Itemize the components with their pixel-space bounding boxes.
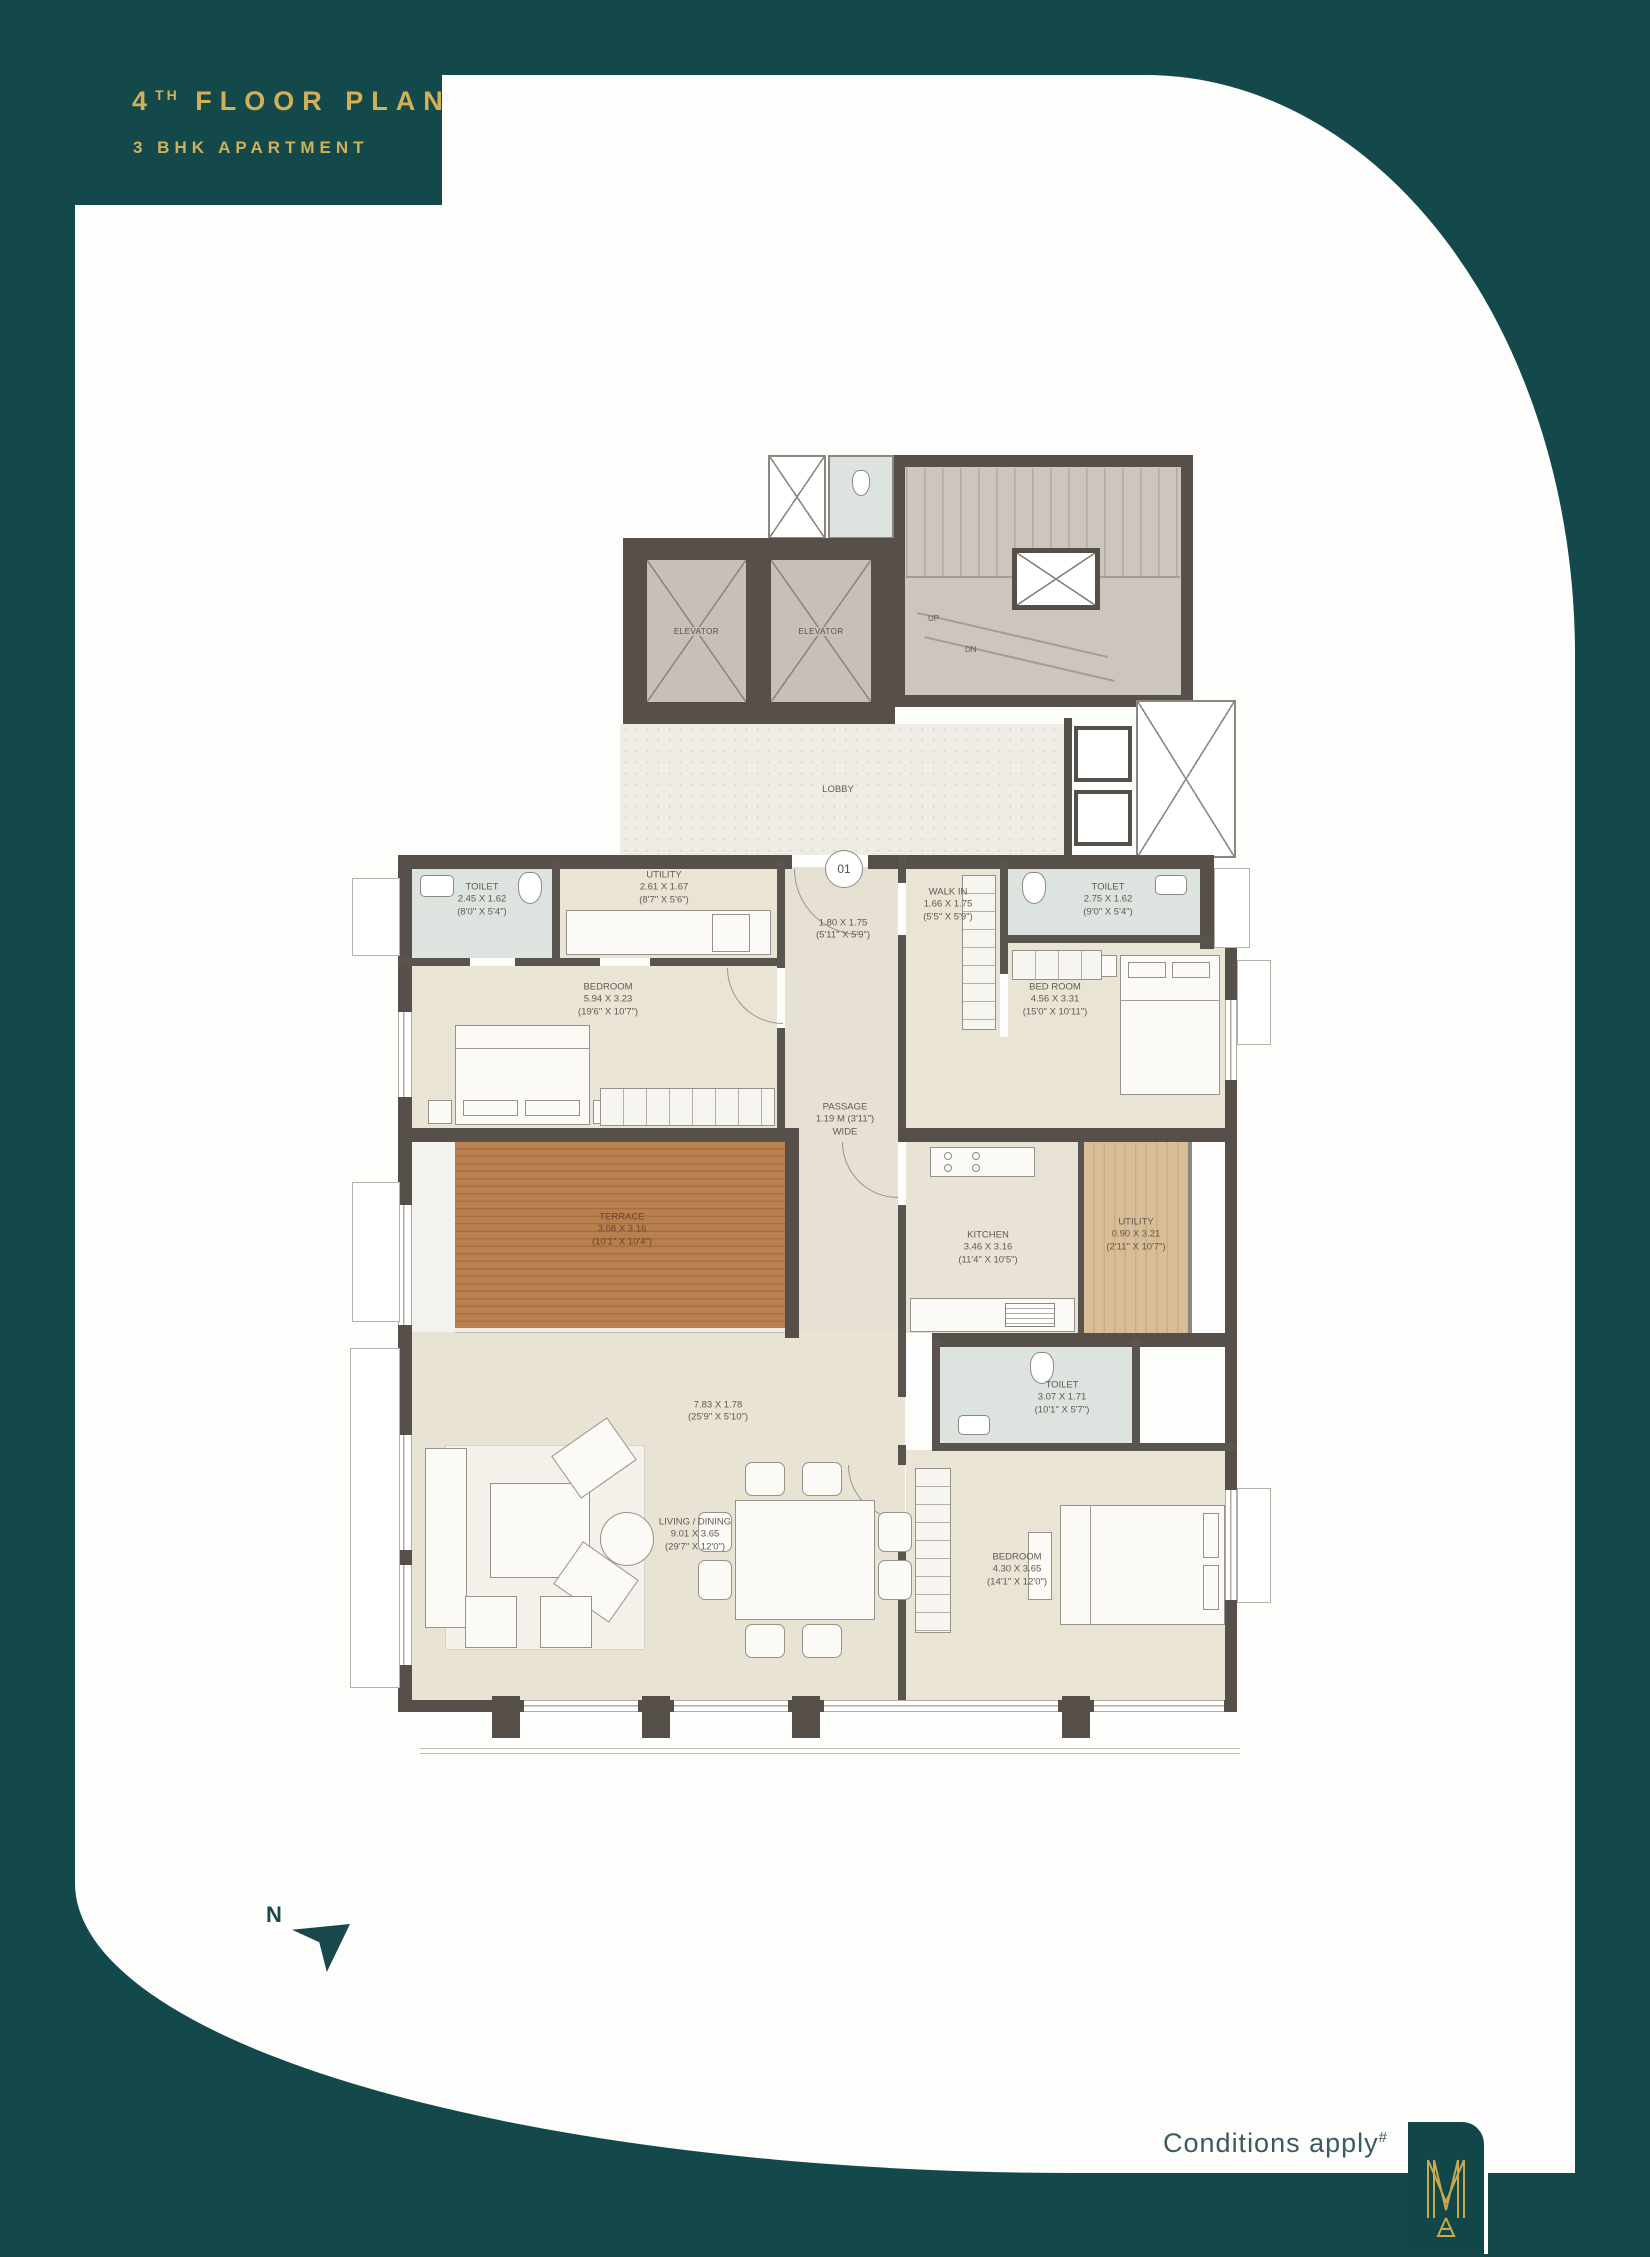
wall-segment xyxy=(898,1335,906,1397)
bedroom-2-wardrobe xyxy=(1012,950,1102,980)
wall-segment xyxy=(898,1128,1237,1142)
unit-number-badge: 01 xyxy=(825,850,863,888)
dining-chair xyxy=(745,1624,785,1658)
lobby-label: LOBBY xyxy=(822,784,854,796)
room-name: BEDROOM xyxy=(578,981,638,993)
elevator-2-label: ELEVATOR xyxy=(796,627,845,636)
room-dims-metric: 2.61 X 1.67 xyxy=(639,882,688,894)
window xyxy=(1225,1490,1237,1600)
wall-segment xyxy=(398,958,470,966)
unit-number-text: 01 xyxy=(837,862,850,876)
room-dims-imperial: (8'7" X 5'6") xyxy=(639,894,688,906)
room-dims-imperial: (29'7" X 12'0") xyxy=(659,1541,731,1553)
conditions-note: Conditions apply# xyxy=(1163,2128,1388,2159)
pier xyxy=(642,1696,670,1738)
room-dims-metric: 1.66 X 1.75 xyxy=(923,899,972,911)
window xyxy=(824,1700,1058,1712)
wall-segment xyxy=(552,860,560,958)
bed-2-pillow xyxy=(1172,962,1210,978)
exterior-ledge xyxy=(352,878,400,956)
wall-segment xyxy=(898,1445,906,1465)
wall-segment xyxy=(898,1205,906,1335)
bedroom-3-wardrobe xyxy=(915,1468,951,1633)
stair-dn-label: DN xyxy=(965,645,977,654)
wall-segment xyxy=(1064,718,1072,855)
room-dims-imperial: (15'0" X 10'11") xyxy=(1023,1006,1088,1018)
stair-up-label: UP xyxy=(928,614,939,623)
window xyxy=(1225,1000,1237,1080)
room-label-bedroom-2: BED ROOM 4.56 X 3.31 (15'0" X 10'11") xyxy=(1023,981,1088,1018)
stair-core-box xyxy=(1012,548,1100,610)
room-dims-metric: 1.80 X 1.75 xyxy=(816,918,870,930)
terrace-walkway xyxy=(412,1142,455,1332)
brand-logo xyxy=(1408,2118,1488,2254)
room-label-living-dining: LIVING / DINING 9.01 X 3.65 (29'7" X 12'… xyxy=(659,1516,731,1553)
room-name: UTILITY xyxy=(1106,1216,1165,1228)
pier xyxy=(492,1696,520,1738)
room-name: PASSAGE xyxy=(816,1101,874,1113)
room-dims-imperial: (14'1" X 12'0") xyxy=(987,1576,1047,1588)
room-label-foyer: 1.80 X 1.75 (5'11" X 5'9") xyxy=(816,918,870,943)
room-label-toilet-2: TOILET 2.75 X 1.62 (9'0" X 5'4") xyxy=(1083,881,1132,918)
service-shaft xyxy=(1074,790,1132,846)
terrace-step-edge xyxy=(455,1328,785,1333)
bed-3-pillow xyxy=(1203,1513,1219,1558)
window xyxy=(674,1700,788,1712)
service-shaft-large xyxy=(1136,700,1236,858)
wall-segment xyxy=(932,1340,940,1450)
window xyxy=(1094,1700,1224,1712)
room-dims-imperial: (10'1" X 10'4") xyxy=(592,1236,652,1248)
elevator-1-label: ELEVATOR xyxy=(672,627,721,636)
room-dims-imperial: (10'1" X 5'7") xyxy=(1035,1404,1090,1416)
room-dims-imperial: (5'5" X 5'9") xyxy=(923,911,972,923)
toilet-1-basin xyxy=(420,875,454,897)
conditions-text: Conditions apply xyxy=(1163,2128,1379,2158)
room-label-toilet-1: TOILET 2.45 X 1.62 (8'0" X 5'4") xyxy=(457,881,506,918)
room-dims-metric: 2.75 X 1.62 xyxy=(1083,894,1132,906)
hob-burner xyxy=(972,1152,980,1160)
hob-burner xyxy=(972,1164,980,1172)
title-floor-rest: FLOOR PLAN xyxy=(180,86,451,116)
page-title: 4TH FLOOR PLAN xyxy=(132,86,451,117)
dining-chair xyxy=(698,1560,732,1600)
room-dims-imperial: (5'11" X 5'9") xyxy=(816,930,870,942)
room-dims-note: WIDE xyxy=(816,1126,874,1138)
wall-north-left xyxy=(398,855,792,869)
wall-north-right xyxy=(868,855,1214,869)
elevator-2: ELEVATOR xyxy=(761,550,881,712)
title-floor-ordinal: TH xyxy=(155,87,180,103)
bed-3-pillow xyxy=(1203,1565,1219,1610)
exterior-ledge xyxy=(1237,1488,1271,1603)
wall-segment xyxy=(1000,942,1008,974)
dining-table xyxy=(735,1500,875,1620)
north-label: N xyxy=(266,1902,282,1928)
logo-m-monogram-icon xyxy=(1408,2122,1484,2252)
pier xyxy=(792,1696,820,1738)
room-dims-imperial: (19'6" X 10'7") xyxy=(578,1006,638,1018)
room-label-utility-1: UTILITY 2.61 X 1.67 (8'7" X 5'6") xyxy=(639,869,688,906)
wall-segment xyxy=(1132,1340,1140,1451)
bedroom-2-vestibule-floor xyxy=(906,1037,1008,1128)
sofa xyxy=(425,1448,467,1628)
window xyxy=(398,1205,412,1325)
title-floor-number: 4 xyxy=(132,86,155,116)
bed-3 xyxy=(1060,1505,1225,1625)
dining-chair xyxy=(802,1462,842,1496)
washing-machine xyxy=(712,914,750,952)
wall-segment xyxy=(777,1028,785,1142)
window xyxy=(524,1700,638,1712)
room-name: TOILET xyxy=(457,881,506,893)
room-dims-metric: 7.83 X 1.78 xyxy=(688,1400,748,1412)
wall-terrace-east xyxy=(785,1128,799,1338)
room-name: BED ROOM xyxy=(1023,981,1088,993)
room-label-bedroom-3: BEDROOM 4.30 X 3.65 (14'1" X 12'0") xyxy=(987,1551,1047,1588)
exterior-ledge xyxy=(352,1182,400,1322)
wall-segment xyxy=(898,935,906,1140)
bed-1-pillow xyxy=(463,1100,518,1116)
floor-plan-page: { "header": { "floor_num": "4", "floor_s… xyxy=(0,0,1650,2250)
exterior-ledge xyxy=(1214,868,1250,948)
hob-burner xyxy=(944,1164,952,1172)
room-dims-metric: 4.30 X 3.65 xyxy=(987,1564,1047,1576)
bed-3-blanket-line xyxy=(1090,1505,1091,1625)
room-name: UTILITY xyxy=(639,869,688,881)
room-label-walkin: WALK IN 1.66 X 1.75 (5'5" X 5'9") xyxy=(923,886,972,923)
wall-segment xyxy=(1000,860,1008,942)
wall-segment xyxy=(1188,1142,1192,1333)
bedside-table xyxy=(428,1100,452,1124)
kitchen-sink xyxy=(1005,1303,1055,1327)
room-dims-metric: 3.07 X 1.71 xyxy=(1035,1392,1090,1404)
room-dims-imperial: (11'4" X 10'5") xyxy=(958,1254,1017,1266)
room-label-toilet-3: TOILET 3.07 X 1.71 (10'1" X 5'7") xyxy=(1035,1379,1090,1416)
room-dims-metric: 5.94 X 3.23 xyxy=(578,994,638,1006)
room-dims-metric: 3.46 X 3.16 xyxy=(958,1242,1017,1254)
balcony-sill-line xyxy=(420,1748,1240,1754)
service-shaft xyxy=(1074,726,1132,782)
room-name: TOILET xyxy=(1035,1379,1090,1391)
room-dims-metric: 0.90 X 3.21 xyxy=(1106,1229,1165,1241)
dining-chair xyxy=(878,1512,912,1552)
common-toilet xyxy=(828,455,894,539)
wall-segment xyxy=(932,1443,1140,1451)
duct-shaft xyxy=(768,455,826,539)
bed-1-pillow xyxy=(525,1100,580,1116)
room-label-bedroom-1: BEDROOM 5.94 X 3.23 (19'6" X 10'7") xyxy=(578,981,638,1018)
wall-segment xyxy=(932,1333,1237,1347)
room-dims-imperial: (9'0" X 5'4") xyxy=(1083,906,1132,918)
room-name: BEDROOM xyxy=(987,1551,1047,1563)
room-dims-imperial: (25'9" X 5'10") xyxy=(688,1412,748,1424)
pouf xyxy=(465,1596,517,1648)
window xyxy=(398,1565,412,1665)
room-name: TOILET xyxy=(1083,881,1132,893)
room-dims-imperial: (2'11" X 10'7") xyxy=(1106,1241,1165,1253)
toilet-1-wc xyxy=(518,872,542,904)
page-subtitle: 3 BHK APARTMENT xyxy=(133,138,369,158)
dining-chair xyxy=(802,1624,842,1658)
label-deck-dims: 7.83 X 1.78 (25'9" X 5'10") xyxy=(688,1400,748,1425)
window xyxy=(398,1435,412,1550)
lobby-text: LOBBY xyxy=(822,784,854,796)
elevator-1: ELEVATOR xyxy=(637,550,756,712)
toilet-2-wc xyxy=(1022,872,1046,904)
hob-burner xyxy=(944,1152,952,1160)
room-name: WALK IN xyxy=(923,886,972,898)
toilet-2-basin xyxy=(1155,875,1187,895)
wall-segment xyxy=(650,958,785,966)
toilet-3-basin xyxy=(958,1415,990,1435)
room-name: LIVING / DINING xyxy=(659,1516,731,1528)
wall-segment xyxy=(1132,1443,1237,1451)
room-label-utility-2: UTILITY 0.90 X 3.21 (2'11" X 10'7") xyxy=(1106,1216,1165,1253)
wall-segment xyxy=(777,860,785,968)
exterior-ledge xyxy=(350,1348,400,1688)
bed-2-pillow xyxy=(1128,962,1166,978)
room-label-passage: PASSAGE 1.19 M (3'11") WIDE xyxy=(816,1101,874,1138)
window xyxy=(398,1012,412,1097)
wall-segment xyxy=(515,958,600,966)
bedroom-1-wardrobe xyxy=(600,1088,775,1126)
room-name: KITCHEN xyxy=(958,1229,1017,1241)
exterior-ledge xyxy=(1237,960,1271,1045)
room-dims-metric: 4.56 X 3.31 xyxy=(1023,994,1088,1006)
room-label-terrace: TERRACE 3.08 X 3.16 (10'1" X 10'4") xyxy=(592,1211,652,1248)
dining-chair xyxy=(878,1560,912,1600)
dining-chair xyxy=(745,1462,785,1496)
room-dims-imperial: (8'0" X 5'4") xyxy=(457,906,506,918)
conditions-superscript: # xyxy=(1379,2129,1388,2146)
room-label-kitchen: KITCHEN 3.46 X 3.16 (11'4" X 10'5") xyxy=(958,1229,1017,1266)
wall-segment xyxy=(898,855,906,883)
wall-segment xyxy=(1078,1142,1084,1333)
room-dims-metric: 2.45 X 1.62 xyxy=(457,894,506,906)
round-side-table xyxy=(600,1512,654,1566)
room-dims-metric: 1.19 M (3'11") xyxy=(816,1114,874,1126)
wall-segment xyxy=(1000,935,1225,943)
wall-terrace-north xyxy=(398,1128,785,1142)
room-dims-metric: 3.08 X 3.16 xyxy=(592,1224,652,1236)
room-name: TERRACE xyxy=(592,1211,652,1223)
pouf xyxy=(540,1596,592,1648)
pier xyxy=(1062,1696,1090,1738)
bed-2-blanket-line xyxy=(1120,1000,1220,1001)
toilet-wc-fixture xyxy=(852,470,870,496)
room-dims-metric: 9.01 X 3.65 xyxy=(659,1529,731,1541)
bed-1-blanket-line xyxy=(455,1048,590,1049)
